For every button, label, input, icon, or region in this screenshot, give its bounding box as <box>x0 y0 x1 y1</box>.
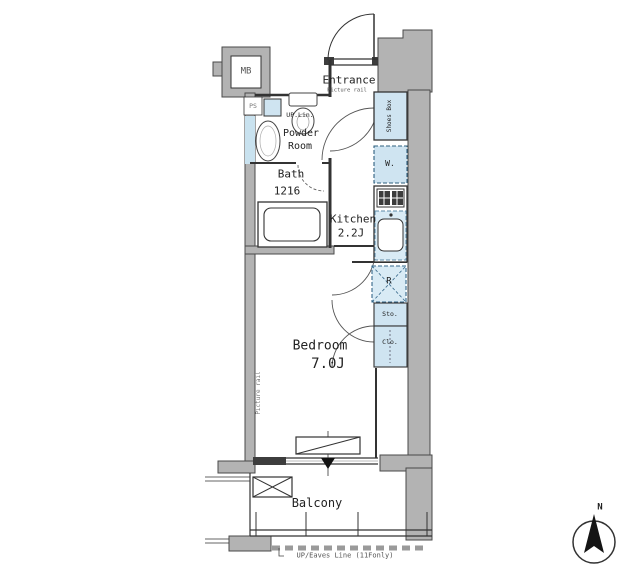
compass <box>573 514 615 563</box>
kitchen-label: Kitchen <box>330 214 376 225</box>
bath-size: 1216 <box>274 186 301 197</box>
storage-label: Sto. <box>382 311 398 318</box>
powder-room-label-2: Room <box>288 142 312 152</box>
washlet-counter <box>264 99 281 116</box>
meter-box-label: MB <box>241 68 252 77</box>
curtain-box-icon <box>296 437 360 454</box>
meter-box-tab <box>213 62 222 76</box>
balcony-label: Balcony <box>292 497 343 509</box>
entrance-label: Entrance <box>323 75 376 86</box>
ac-unit-box <box>253 477 292 497</box>
wall-east-column <box>408 90 430 458</box>
eaves-note: UP/Eaves Line (11Fonly) <box>297 553 394 560</box>
closet-box <box>374 326 407 367</box>
powder-room-label: Powder <box>283 129 319 139</box>
pipe-space-label: PS <box>249 103 257 110</box>
shoes-box-label: Shoes Box <box>387 100 393 133</box>
kitchen-size: 2.2J <box>338 228 365 239</box>
entrance-note: Picture rail <box>327 88 367 94</box>
refrigerator-label: R <box>386 278 391 287</box>
entrance-door <box>328 14 374 60</box>
floor-plan-drawing <box>0 0 640 569</box>
powder-room-note: UP.Lin. <box>286 112 313 119</box>
closet-label: Clo. <box>382 339 398 346</box>
washer-label: W. <box>385 160 395 168</box>
wall-southwest <box>218 461 255 473</box>
kitchen-sink-icon <box>375 211 406 260</box>
bathtub-icon <box>258 202 327 247</box>
wall-balcony-east <box>406 468 432 540</box>
compass-north-label: N <box>597 504 602 513</box>
wall-insulation <box>245 116 255 164</box>
wall-top-right <box>378 30 432 92</box>
bath-label: Bath <box>278 169 305 180</box>
stove-icon <box>377 189 404 207</box>
bedroom-label: Bedroom <box>293 340 348 353</box>
picture-rail-label: Picture rail <box>256 371 262 414</box>
floor-plan: MB PS UP.Lin. Powder Room Entrance Pictu… <box>0 0 640 569</box>
wall-balcony-block <box>229 536 271 551</box>
bedroom-size: 7.0J <box>311 357 345 371</box>
washbasin-icon <box>256 121 280 161</box>
